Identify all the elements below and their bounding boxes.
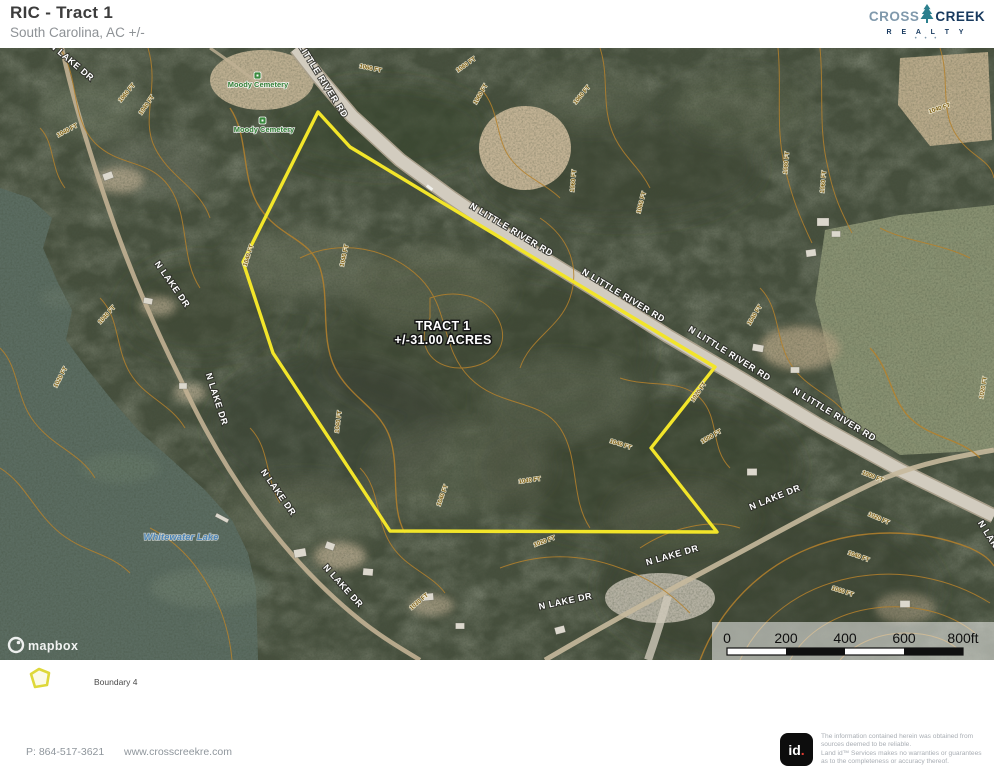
tract-acreage: +/-31.00 ACRES [394,333,491,347]
scale-tick-label: 400 [833,630,857,646]
page: RIC - Tract 1 South Carolina, AC +/- CRO… [0,0,994,768]
logo-dots: • • • [868,36,986,42]
title-block: RIC - Tract 1 South Carolina, AC +/- [10,3,145,40]
disclaimer-line: as to the completeness or accuracy there… [821,758,993,766]
footer: P: 864-517-3621 www.crosscreekre.com id.… [0,726,994,768]
company-logo: CROSS CREEK R E A L T Y • • • [868,4,986,42]
logo-cross-text: CROSS [869,9,920,24]
logo-realty-text: R E A L T Y [868,29,986,36]
disclaimer-line: Land id™ Services makes no warranties or… [821,750,993,758]
page-title: RIC - Tract 1 [10,3,145,23]
legend: Boundary 4 [26,666,137,697]
mapbox-wordmark: mapbox [28,639,78,653]
scale-tick-label: 800ft [947,630,978,646]
disclaimer-text: The information contained herein was obt… [821,733,993,766]
scale-bar: 0200400600800ft [712,622,994,660]
disclaimer-line: sources deemed to be reliable. [821,741,993,749]
boundary-legend-icon [26,666,54,697]
legend-item-label: Boundary 4 [94,677,137,687]
tract-name: TRACT 1 [416,319,471,333]
phone-number: P: 864-517-3621 [26,746,104,758]
scale-tick-label: 200 [774,630,798,646]
website-link[interactable]: www.crosscreekre.com [124,746,232,758]
disclaimer-line: The information contained herein was obt… [821,733,993,741]
pine-tree-icon [920,4,934,28]
header: RIC - Tract 1 South Carolina, AC +/- CRO… [0,0,994,48]
land-id-logo: id. [780,733,813,766]
lake-name-label: Whitewater Lake [144,532,220,543]
scale-tick-label: 0 [723,630,731,646]
terrain [0,48,994,660]
cemetery-label: Moody Cemetery [228,80,289,89]
cemetery-label: Moody Cemetery [234,125,295,134]
scale-tick-label: 600 [892,630,916,646]
logo-creek-text: CREEK [935,9,985,24]
map-svg: 1060 FT1060 FT1060 FT1060 FT1060 FT1060 … [0,48,994,660]
page-subtitle: South Carolina, AC +/- [10,25,145,40]
map-canvas[interactable]: 1060 FT1060 FT1060 FT1060 FT1060 FT1060 … [0,48,994,660]
